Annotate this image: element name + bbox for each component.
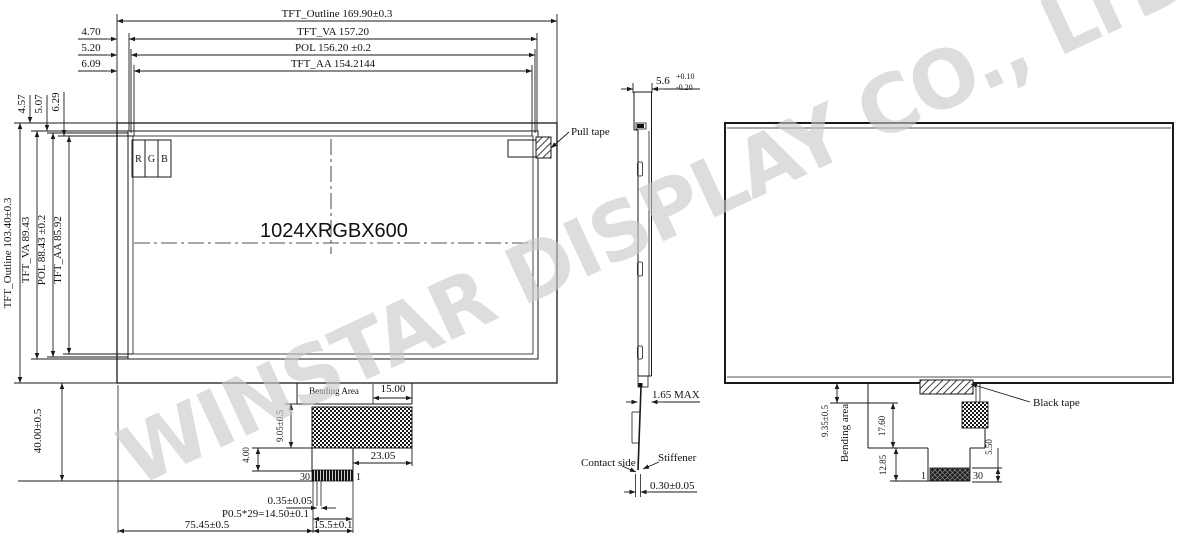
dim-outline-height: TFT_Outline 103.40±0.3 bbox=[2, 197, 14, 308]
dim-pin-pitch: P0.5*29=14.50±0.1 bbox=[222, 508, 309, 520]
dim-back-mid-height: 17.60 bbox=[877, 415, 887, 436]
dim-aa-width: TFT_AA 154.2144 bbox=[291, 58, 376, 70]
front-outline-rect bbox=[117, 123, 557, 383]
front-view: R G B Pull tape 1024XRGBX600 bbox=[2, 8, 610, 533]
dim-aa-offset-v: 6.29 bbox=[50, 92, 62, 112]
dim-bottom-height: 40.00±0.5 bbox=[32, 408, 44, 453]
dim-max-thickness: 1.65 MAX bbox=[652, 389, 700, 401]
stiffener-label: Stiffener bbox=[658, 452, 697, 464]
back-pin-30-label: 30 bbox=[973, 471, 983, 482]
side-fpc-tail bbox=[638, 387, 641, 470]
dim-aa-offset: 6.09 bbox=[81, 58, 101, 70]
pull-tape-hatch bbox=[536, 137, 551, 158]
dim-pin-width: 0.35±0.05 bbox=[267, 495, 312, 507]
dim-fpc-thickness: 0.30±0.05 bbox=[650, 480, 695, 492]
fpc-stiffener-area bbox=[312, 407, 412, 448]
pull-tape-label: Pull tape bbox=[571, 126, 610, 138]
dim-connector-width: 15.5±0.1 bbox=[313, 519, 352, 531]
pixel-b-label: B bbox=[161, 154, 168, 165]
dim-back-low-height: 12.85 bbox=[878, 454, 888, 475]
dim-thickness-tol-plus: +0.10 bbox=[676, 72, 695, 81]
dim-thickness: 5.6 bbox=[656, 75, 670, 87]
dim-va-offset: 4.70 bbox=[81, 26, 101, 38]
dim-connector-offset: 75.45±0.5 bbox=[185, 519, 230, 531]
front-aa-rect bbox=[133, 136, 533, 354]
dim-outline-width: TFT_Outline 169.90±0.3 bbox=[282, 8, 393, 20]
dim-pol-height: POL 88.43 ±0.2 bbox=[36, 215, 48, 285]
pin-1-label: 1 bbox=[356, 472, 361, 483]
back-dimensions: 9.35±0.5 Bending area 17.60 12.85 5.50 bbox=[820, 383, 1002, 482]
dim-pol-width: POL 156.20 ±0.2 bbox=[295, 42, 371, 54]
contact-side-label: Contact side bbox=[581, 457, 636, 469]
back-tape-pad bbox=[962, 402, 988, 428]
fpc-connector-pins bbox=[312, 470, 353, 481]
dim-thickness-tol-minus: -0.20 bbox=[676, 83, 693, 92]
pixel-g-label: G bbox=[148, 154, 155, 165]
front-va-rect bbox=[128, 131, 538, 359]
dim-va-width: TFT_VA 157.20 bbox=[297, 26, 369, 38]
tft-display-mechanical-drawing: R G B Pull tape 1024XRGBX600 bbox=[0, 0, 1178, 551]
dim-va-height: TFT_VA 89.43 bbox=[20, 216, 32, 283]
back-pin-1-label: 1 bbox=[921, 471, 926, 482]
dim-back-conn-height: 5.50 bbox=[984, 439, 994, 455]
back-bending-area-label: Bending area bbox=[839, 404, 851, 462]
black-tape bbox=[920, 380, 973, 394]
dim-stem-height: 4.00 bbox=[241, 447, 251, 463]
dim-aa-height: TFT_AA 85.92 bbox=[52, 216, 64, 284]
side-pull-tape-mark bbox=[637, 124, 644, 128]
side-profile bbox=[632, 92, 652, 470]
dim-bend-height: 9.05±0.5 bbox=[275, 410, 285, 442]
pixel-r-label: R bbox=[135, 154, 142, 165]
back-view: 1 30 Black tape 9.35±0.5 Bending area 17… bbox=[725, 123, 1173, 482]
dim-pol-offset: 5.20 bbox=[81, 42, 101, 54]
bending-area-label: Bending Area bbox=[309, 386, 359, 396]
resolution-label: 1024XRGBX600 bbox=[260, 220, 408, 242]
dim-va-offset-v: 4.57 bbox=[16, 94, 28, 114]
dim-back-bend-height: 9.35±0.5 bbox=[820, 405, 830, 437]
black-tape-label: Black tape bbox=[1033, 397, 1080, 409]
dim-pol-offset-v: 5.07 bbox=[33, 94, 45, 114]
drawing-canvas: R G B Pull tape 1024XRGBX600 bbox=[0, 0, 1178, 551]
pin-30-label: 30 bbox=[300, 472, 310, 483]
back-connector bbox=[930, 468, 970, 481]
dim-tail-right-width: 23.05 bbox=[371, 450, 396, 462]
back-outline-rect bbox=[725, 123, 1173, 383]
rgb-pixel-boxes: R G B bbox=[132, 140, 171, 177]
front-fpc-tail: Bending Area 15.00 30 1 9.05±0.5 4.00 23… bbox=[118, 383, 412, 533]
front-top-dimensions: TFT_Outline 169.90±0.3 TFT_VA 157.20 4.7… bbox=[16, 8, 557, 136]
dim-bend-width: 15.00 bbox=[381, 383, 406, 395]
